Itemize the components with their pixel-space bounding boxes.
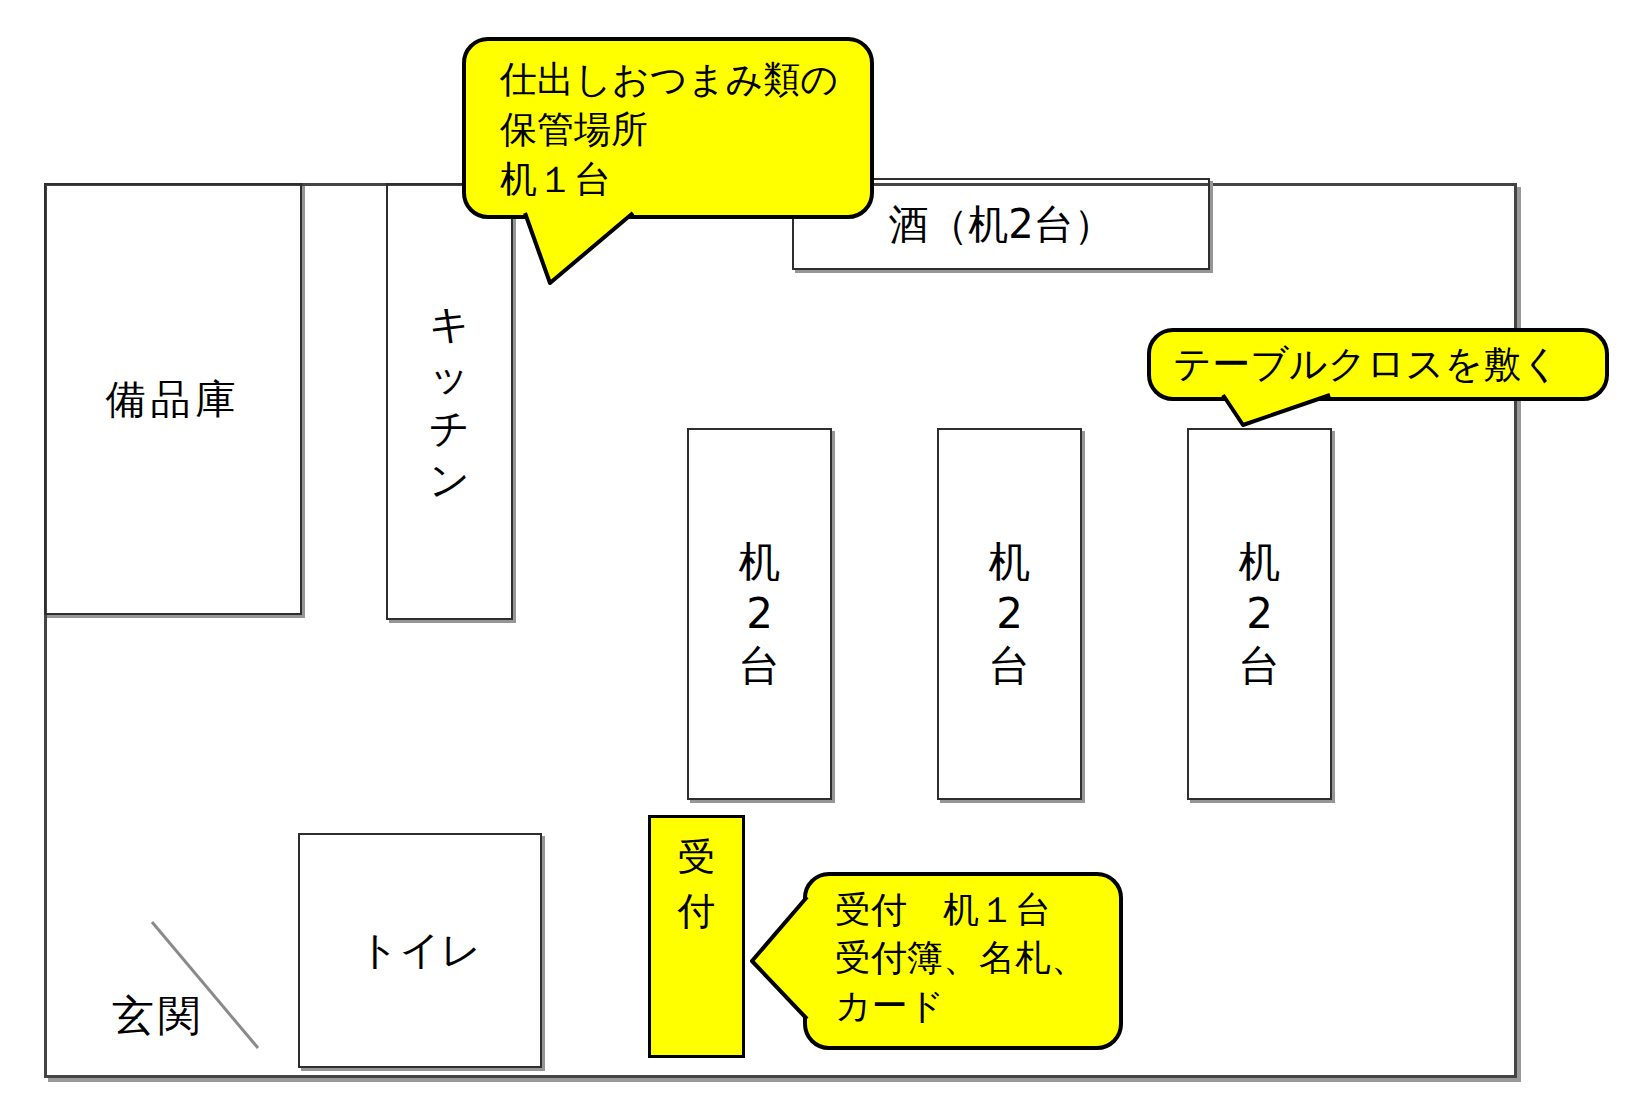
table-desks-3: 机 2 台	[1187, 428, 1332, 800]
table-desks-2-label: 机 2 台	[989, 536, 1031, 692]
desk-char: 机	[739, 536, 781, 588]
callout-reception-line: 受付 机１台	[835, 886, 1119, 934]
callout-reception-note: 受付 机１台 受付簿、名札、 カード	[803, 872, 1123, 1050]
callout-tablecloth-label: テーブルクロスを敷く	[1173, 339, 1560, 390]
kitchen-char: ッ	[429, 350, 470, 402]
room-kitchen: キ ッ チ ン	[386, 183, 513, 620]
kitchen-char: ン	[429, 454, 470, 506]
room-storage-label: 備品庫	[106, 372, 241, 427]
entrance-label: 玄関	[112, 988, 204, 1044]
callout-tablecloth: テーブルクロスを敷く	[1147, 328, 1609, 401]
desk-char: 机	[989, 536, 1031, 588]
callout-catering-line: 机１台	[500, 155, 870, 205]
room-toilet: トイレ	[298, 833, 542, 1068]
table-desks-3-label: 机 2 台	[1239, 536, 1281, 692]
desk-char: 2	[1246, 588, 1273, 640]
callout-catering-line: 仕出しおつまみ類の	[500, 55, 870, 105]
reception-desk: 受 付	[648, 815, 745, 1058]
callout-reception-line: 受付簿、名札、	[835, 934, 1119, 982]
desk-char: 台	[739, 640, 781, 692]
desk-char: 台	[1239, 640, 1281, 692]
reception-char: 受	[678, 830, 716, 884]
callout-catering-storage: 仕出しおつまみ類の 保管場所 机１台	[462, 37, 874, 219]
room-kitchen-label: キ ッ チ ン	[429, 298, 470, 506]
desk-char: 机	[1239, 536, 1281, 588]
kitchen-char: キ	[429, 298, 470, 350]
desk-char: 2	[996, 588, 1023, 640]
reception-desk-label: 受 付	[678, 830, 716, 938]
table-desks-1: 机 2 台	[687, 428, 832, 800]
room-storage: 備品庫	[44, 183, 302, 615]
callout-reception-line: カード	[835, 982, 1119, 1030]
table-desks-1-label: 机 2 台	[739, 536, 781, 692]
desk-char: 台	[989, 640, 1031, 692]
table-sake-label: 酒（机2台）	[888, 197, 1113, 252]
table-desks-2: 机 2 台	[937, 428, 1082, 800]
floor-plan: 備品庫 キ ッ チ ン 酒（机2台） 机 2 台 机 2 台 机 2 台	[0, 0, 1644, 1118]
callout-catering-line: 保管場所	[500, 105, 870, 155]
desk-char: 2	[746, 588, 773, 640]
room-toilet-label: トイレ	[359, 923, 482, 978]
reception-char: 付	[678, 884, 716, 938]
kitchen-char: チ	[429, 402, 470, 454]
